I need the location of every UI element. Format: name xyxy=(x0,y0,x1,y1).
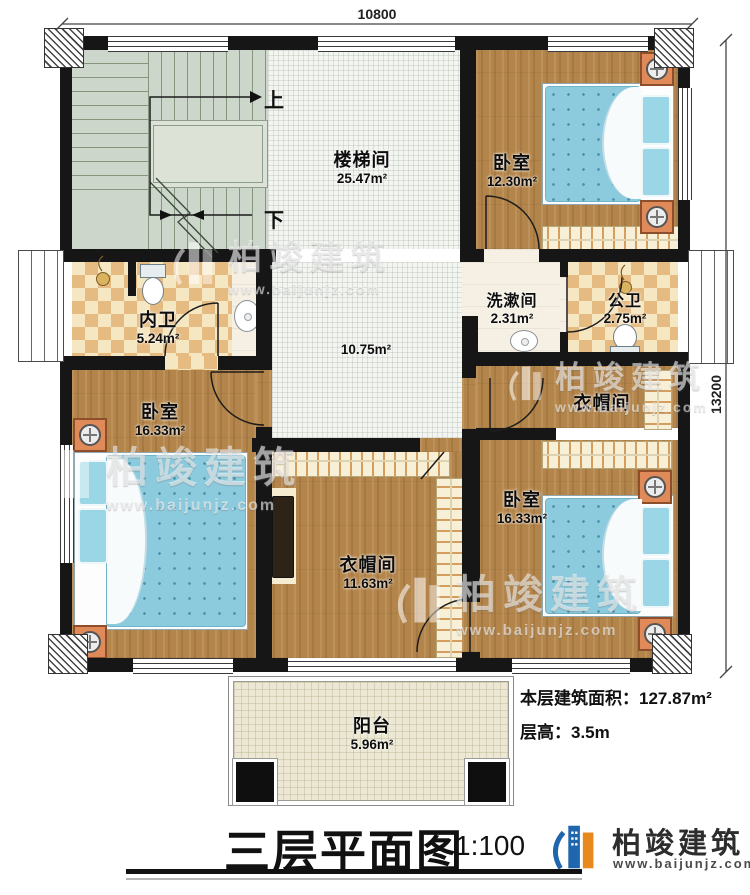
table-lamp-icon xyxy=(79,424,101,446)
door-threshold xyxy=(256,370,272,427)
room-label-cloakroom-center: 衣帽间 11.63m² xyxy=(340,555,397,591)
room-label-bedroom-top-right: 卧室 12.30m² xyxy=(487,153,537,189)
wall-segment xyxy=(218,356,262,370)
nightstand xyxy=(640,200,674,234)
table-lamp-icon xyxy=(644,476,666,498)
room-label-stairwell: 楼梯间 25.47m² xyxy=(334,150,391,186)
bay-window xyxy=(18,250,64,362)
room-label-hall-area: 10.75m² xyxy=(341,342,391,358)
stair-flight-bottom xyxy=(148,188,268,249)
dimension-right: 13200 xyxy=(708,375,724,414)
brand-url: www.baijunjz.com xyxy=(613,856,750,871)
corner-column xyxy=(654,28,694,68)
wall-segment xyxy=(462,652,480,658)
wall-segment xyxy=(462,316,478,352)
wall-segment xyxy=(60,36,72,252)
room-label-cloakroom-right: 衣帽间 xyxy=(574,393,631,414)
wall-segment xyxy=(678,200,690,250)
wall-segment xyxy=(462,438,480,602)
wardrobe-rail xyxy=(644,370,672,430)
bed-pillow xyxy=(641,95,671,145)
wall-segment xyxy=(455,36,548,50)
toilet-bowl xyxy=(142,277,164,305)
corner-column xyxy=(48,634,88,674)
window xyxy=(108,36,228,52)
wall-segment xyxy=(462,429,476,438)
room-label-bedroom-bottom-right: 卧室 16.33m² xyxy=(497,490,547,526)
wall-segment xyxy=(476,428,556,440)
nightstand xyxy=(73,418,107,452)
wall-segment xyxy=(678,362,690,672)
stair-direction-down: 下 xyxy=(264,204,284,233)
wardrobe-rail xyxy=(542,441,672,469)
wall-segment xyxy=(60,358,72,445)
room-label-washroom: 洗漱间 2.31m² xyxy=(486,293,537,327)
bed-pillow xyxy=(641,506,671,556)
floor-height-label: 层高： xyxy=(520,723,571,742)
floor-area-label: 本层建筑面积： xyxy=(520,689,639,708)
door-threshold xyxy=(420,438,462,452)
room-label-bedroom-left: 卧室 16.33m² xyxy=(135,402,185,438)
wall-segment xyxy=(256,249,272,370)
corner-column xyxy=(652,634,692,674)
wall-segment xyxy=(460,249,484,262)
corner-column xyxy=(44,28,84,68)
sink xyxy=(510,330,538,352)
door-threshold xyxy=(462,378,476,429)
wall-segment xyxy=(60,249,276,262)
title-underline xyxy=(126,869,582,874)
stair-flight-top xyxy=(148,50,268,120)
wall-segment xyxy=(256,427,272,658)
wall-segment xyxy=(252,438,420,452)
dressing-table xyxy=(272,496,294,578)
wall-segment xyxy=(456,658,512,672)
wall-segment xyxy=(560,262,568,277)
room-label-balcony: 阳台 5.96m² xyxy=(351,716,394,752)
door-threshold xyxy=(560,277,568,332)
floor-area-info: 本层建筑面积：127.87m² xyxy=(520,684,712,709)
stair-landing xyxy=(148,120,268,188)
floor-height-value: 3.5m xyxy=(571,723,610,742)
drawing-scale: 1:100 xyxy=(455,830,525,862)
sliding-door xyxy=(288,658,456,672)
toilet-tank xyxy=(140,264,166,278)
wall-segment xyxy=(462,366,476,378)
wall-segment xyxy=(60,356,165,370)
window xyxy=(678,88,692,200)
bay-window xyxy=(688,250,734,364)
floor-height-info: 层高：3.5m xyxy=(520,718,610,743)
wall-segment xyxy=(128,262,136,296)
door-threshold xyxy=(165,356,218,370)
nightstand xyxy=(638,470,672,504)
balcony-column xyxy=(468,762,506,802)
wall-segment xyxy=(462,352,690,366)
door-threshold xyxy=(484,249,539,262)
room-label-inner-bath: 内卫 5.24m² xyxy=(137,310,180,346)
stair-direction-up: 上 xyxy=(264,84,284,113)
bed-pillow xyxy=(641,147,671,197)
window xyxy=(548,36,648,52)
balcony-column xyxy=(236,762,274,802)
door-threshold xyxy=(462,602,480,652)
wall-segment xyxy=(228,36,318,50)
room-label-public-bath: 公卫 2.75m² xyxy=(604,293,647,327)
floor-area-value: 127.87m² xyxy=(639,689,712,708)
shower-head-icon xyxy=(96,272,110,286)
window xyxy=(60,445,74,563)
brand-logo-icon xyxy=(548,818,606,876)
window xyxy=(512,658,630,674)
wall-segment xyxy=(539,249,690,262)
bed-pillow xyxy=(78,508,108,564)
bed-pillow xyxy=(78,460,108,506)
dimension-top: 10800 xyxy=(340,6,414,22)
wall-segment xyxy=(233,658,288,672)
floor-plan-sheet: 楼梯间 25.47m² 10.75m² 卧室 12.30m² 内卫 5.24m²… xyxy=(0,0,750,895)
window xyxy=(133,658,233,674)
title-underline-thin xyxy=(126,878,582,880)
window xyxy=(318,36,455,52)
wall-segment xyxy=(460,50,476,249)
table-lamp-icon xyxy=(646,206,668,228)
stair-flight-left xyxy=(72,50,148,190)
bed-pillow xyxy=(641,558,671,608)
